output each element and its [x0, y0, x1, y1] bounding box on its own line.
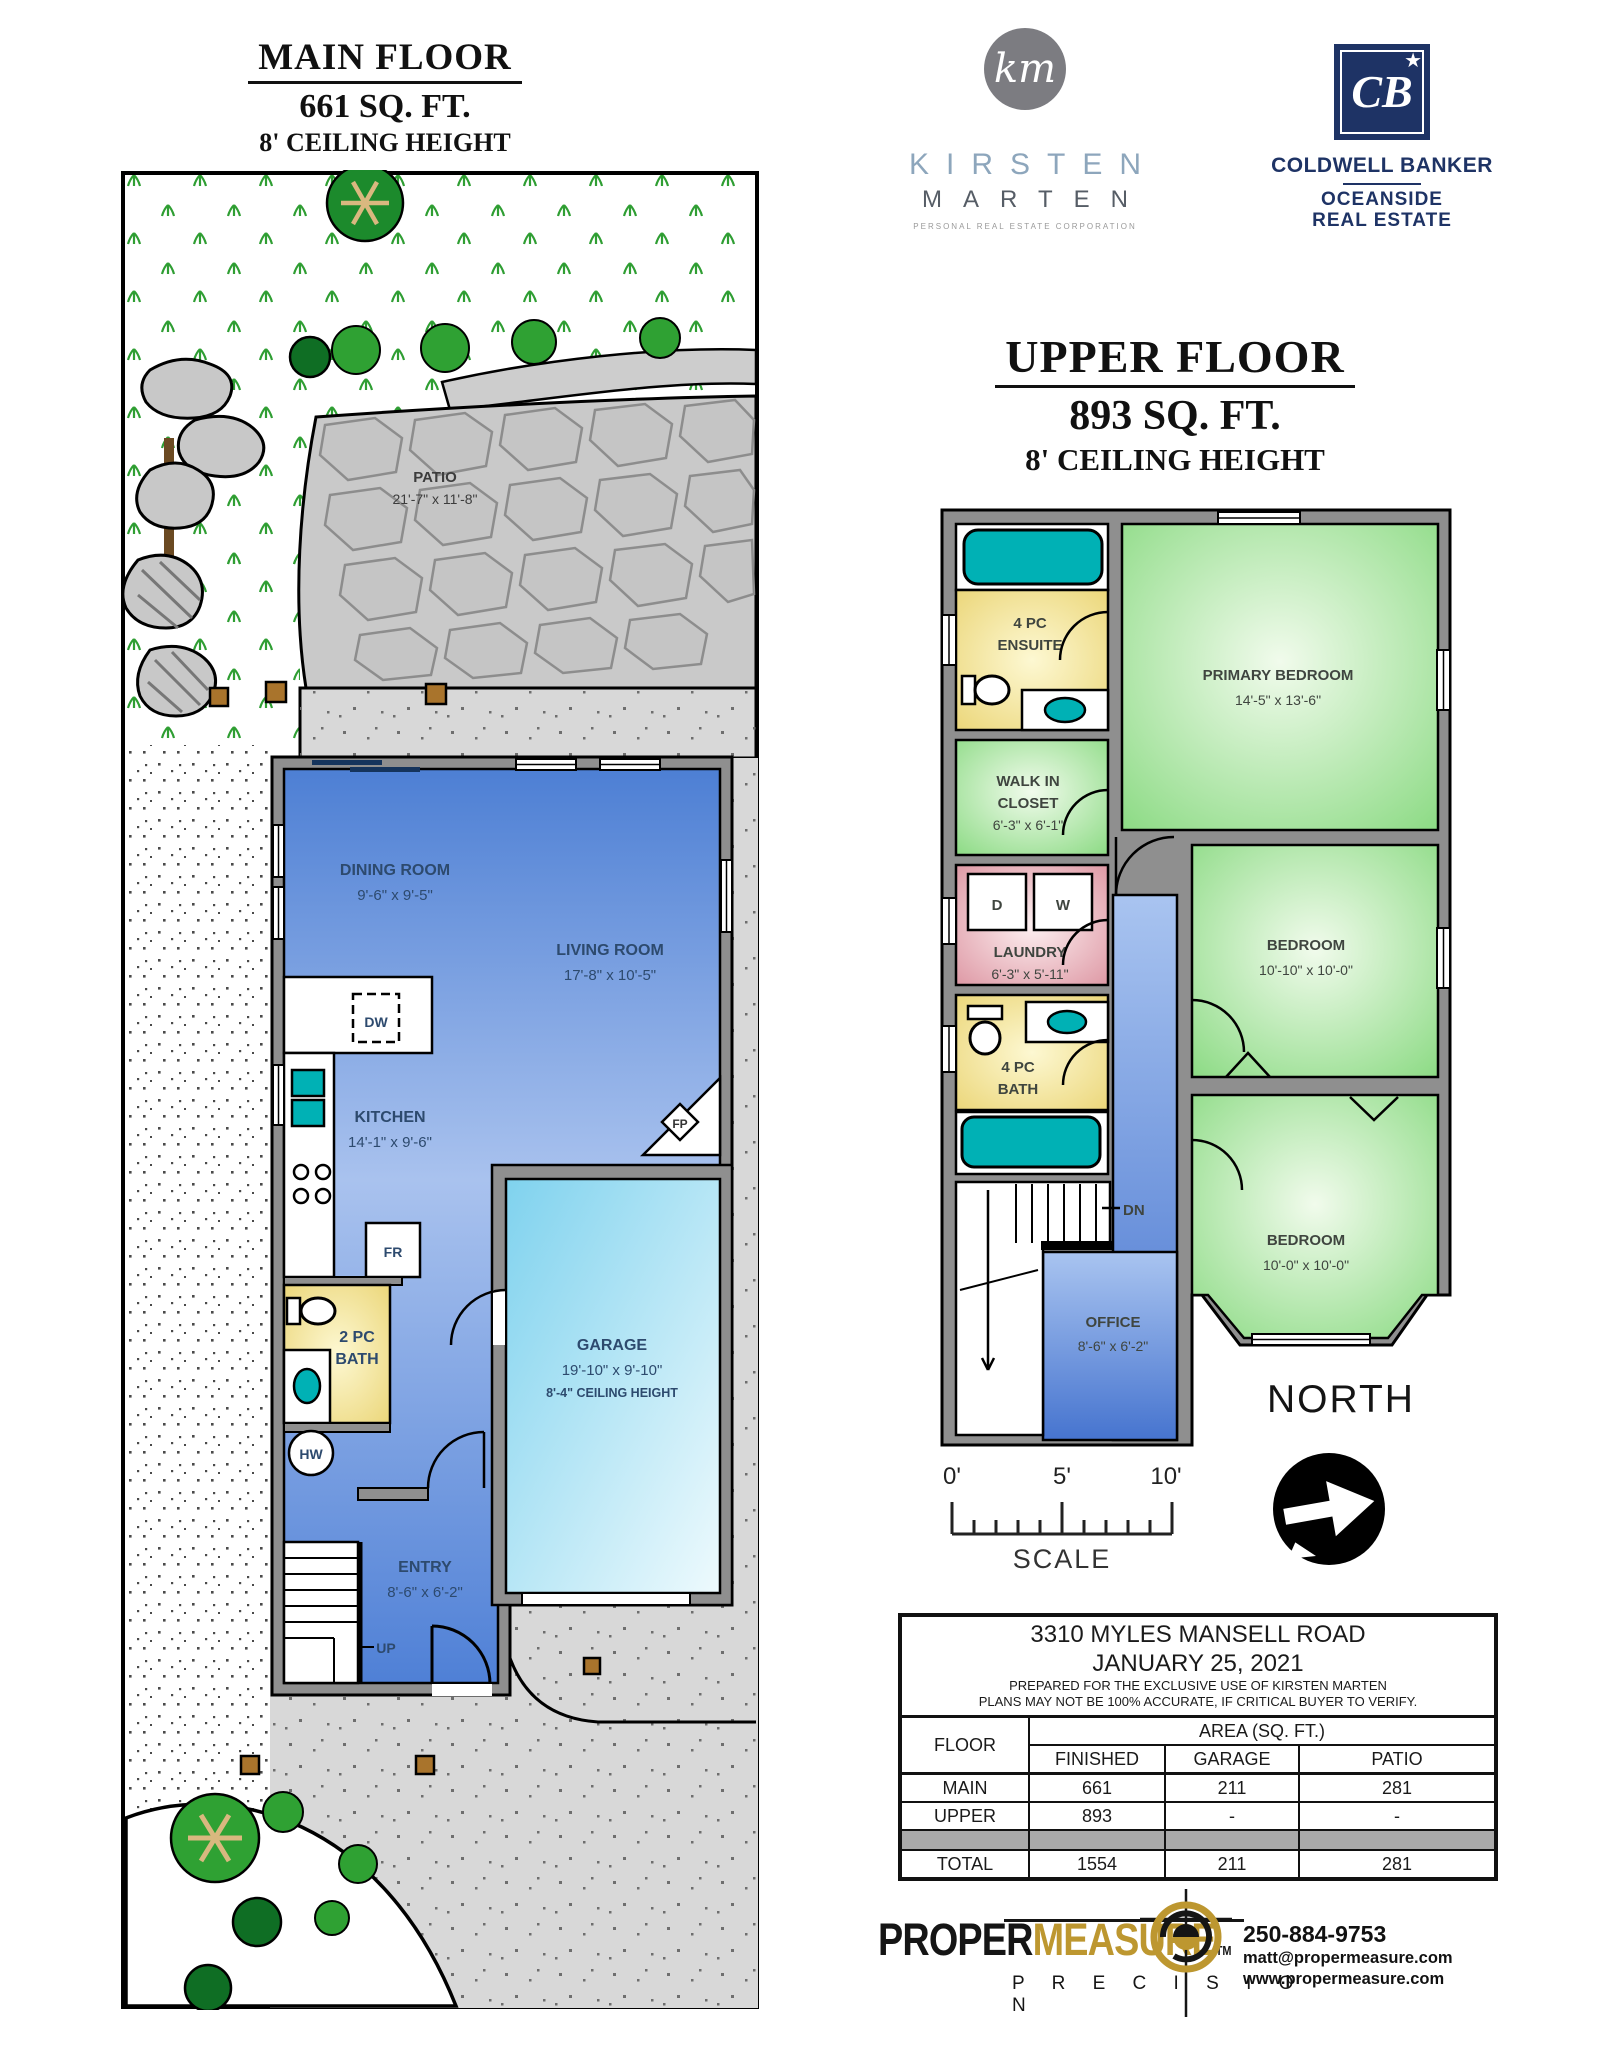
- entry-dims: 8'-6" x 6'-2": [387, 1584, 463, 1601]
- main-bath: 4 PC BATH: [956, 995, 1108, 1110]
- patio: PATIO 21'-7" x 11'-8": [299, 396, 756, 688]
- scale-bar: 0' 5' 10' SCALE: [938, 1452, 1188, 1577]
- fp-label: FP: [672, 1117, 687, 1131]
- kirsten-marten-logo: km KIRSTEN MARTEN PERSONAL REAL ESTATE C…: [860, 28, 1190, 231]
- upper-floor-title-block: UPPER FLOOR 893 SQ. FT. 8' CEILING HEIGH…: [955, 330, 1395, 478]
- cb-name: COLDWELL BANKER: [1253, 154, 1511, 178]
- laundry-label: LAUNDRY: [994, 944, 1067, 961]
- laundry: D W LAUNDRY 6'-3" x 5'-11": [956, 865, 1108, 985]
- deck: [300, 688, 756, 758]
- phone-number: 250-884-9753: [1243, 1920, 1523, 1948]
- living-dims: 17'-8" x 10'-5": [564, 967, 656, 984]
- main-house: GARAGE 19'-10" x 9'-10" 8'-4" CEILING HE…: [272, 757, 732, 1696]
- scale-ruler: [952, 1502, 1172, 1534]
- closet-label2: CLOSET: [998, 795, 1059, 812]
- bedroom3-label: BEDROOM: [1267, 1232, 1345, 1249]
- row-total-garage: 211: [1166, 1851, 1300, 1877]
- col-patio: PATIO: [1300, 1746, 1494, 1775]
- garage-dims: 19'-10" x 9'-10": [562, 1362, 663, 1379]
- cb-monogram: CB: [1351, 69, 1412, 115]
- row-main-patio: 281: [1300, 1775, 1494, 1803]
- sink-icon: [1048, 1011, 1086, 1033]
- dining-dims: 9'-6" x 9'-5": [357, 887, 433, 904]
- cb-logo-icon: CB ★: [1334, 44, 1430, 140]
- upper-floor-plan: 4 PC ENSUITE WALK IN CLOSET 6'-3" x 6'-1…: [930, 500, 1460, 1460]
- col-floor: FLOOR: [902, 1718, 1030, 1775]
- kitchen-label: KITCHEN: [354, 1109, 425, 1126]
- prepared-for: PREPARED FOR THE EXCLUSIVE USE OF KIRSTE…: [902, 1678, 1494, 1694]
- bedroom-2: BEDROOM 10'-10" x 10'-0": [1192, 845, 1438, 1077]
- km-monogram-icon: km: [984, 28, 1066, 110]
- website: www.propermeasure.com: [1243, 1969, 1523, 1990]
- row-main-floor: MAIN: [902, 1775, 1030, 1803]
- powder-room: 2 PC BATH: [284, 1277, 402, 1432]
- bedroom2-label: BEDROOM: [1267, 937, 1345, 954]
- row-upper-finished: 893: [1030, 1803, 1166, 1831]
- washer-label: W: [1056, 897, 1071, 914]
- primary-dims: 14'-5" x 13'-6": [1235, 692, 1321, 708]
- col-garage: GARAGE: [1166, 1746, 1300, 1775]
- dining-label: DINING ROOM: [340, 862, 450, 879]
- plan-date: JANUARY 25, 2021: [902, 1649, 1494, 1678]
- dw-label: DW: [364, 1014, 388, 1030]
- fr-label: FR: [384, 1244, 403, 1260]
- scale-label: SCALE: [1013, 1544, 1112, 1574]
- patio-label: PATIO: [413, 469, 457, 486]
- toilet-icon: [962, 676, 1009, 704]
- km-tagline: PERSONAL REAL ESTATE CORPORATION: [860, 222, 1190, 231]
- ensuite-label1: 4 PC: [1013, 615, 1047, 632]
- row-upper-floor: UPPER: [902, 1803, 1030, 1831]
- hot-water-tank: HW: [289, 1431, 333, 1475]
- bath2-label2: BATH: [335, 1351, 378, 1368]
- ensuite-tub: [956, 524, 1108, 590]
- kitchen-dims: 14'-1" x 9'-6": [348, 1134, 432, 1151]
- target-icon: [1140, 1889, 1232, 2017]
- row-total-finished: 1554: [1030, 1851, 1166, 1877]
- table-header: 3310 MYLES MANSELL ROAD JANUARY 25, 2021…: [902, 1617, 1494, 1718]
- primary-bedroom: PRIMARY BEDROOM 14'-5" x 13'-6": [1122, 524, 1438, 830]
- scale-5: 5': [1053, 1463, 1071, 1490]
- upper-floor-area: 893 SQ. FT.: [955, 392, 1395, 440]
- row-main-garage: 211: [1166, 1775, 1300, 1803]
- hw-label: HW: [299, 1446, 323, 1462]
- col-area: AREA (SQ. FT.): [1030, 1718, 1494, 1746]
- row-main-finished: 661: [1030, 1775, 1166, 1803]
- main-floor-title: MAIN FLOOR: [248, 36, 522, 84]
- upper-floor-ceiling: 8' CEILING HEIGHT: [955, 442, 1395, 478]
- main-floor-title-block: MAIN FLOOR 661 SQ. FT. 8' CEILING HEIGHT: [150, 36, 620, 158]
- office-label: OFFICE: [1086, 1314, 1141, 1331]
- row-upper-garage: -: [1166, 1803, 1300, 1831]
- toilet-icon: [968, 1006, 1002, 1054]
- entry-label: ENTRY: [398, 1559, 452, 1576]
- bath-tub: [956, 1112, 1108, 1174]
- scale-0: 0': [943, 1463, 961, 1490]
- main-floor-ceiling: 8' CEILING HEIGHT: [150, 128, 620, 158]
- spacer-row: [902, 1831, 1030, 1851]
- area-grid: FLOOR AREA (SQ. FT.) FINISHED GARAGE PAT…: [902, 1718, 1494, 1877]
- toilet-icon: [287, 1298, 335, 1324]
- upper-floor-title: UPPER FLOOR: [995, 330, 1354, 388]
- coldwell-banker-logo: CB ★ COLDWELL BANKER OCEANSIDE REAL ESTA…: [1253, 44, 1511, 231]
- km-first-name: KIRSTEN: [860, 148, 1190, 182]
- km-last-name: MARTEN: [860, 186, 1190, 214]
- laundry-dims: 6'-3" x 5'-11": [991, 966, 1068, 982]
- bedroom-3: BEDROOM 10'-0" x 10'-0": [1192, 1095, 1438, 1345]
- garage: GARAGE 19'-10" x 9'-10" 8'-4" CEILING HE…: [492, 1165, 732, 1605]
- email: matt@propermeasure.com: [1243, 1948, 1523, 1969]
- dn-label: DN: [1123, 1202, 1145, 1219]
- cb-star-icon: ★: [1404, 48, 1422, 73]
- bath-label1: 4 PC: [1001, 1059, 1035, 1076]
- bedroom2-dims: 10'-10" x 10'-0": [1259, 962, 1353, 978]
- sink-icon: [294, 1369, 320, 1403]
- main-floor-area: 661 SQ. FT.: [150, 88, 620, 126]
- garage-ceiling: 8'-4" CEILING HEIGHT: [546, 1386, 678, 1400]
- floor-plan-page: MAIN FLOOR 661 SQ. FT. 8' CEILING HEIGHT…: [0, 0, 1600, 2071]
- disclaimer: PLANS MAY NOT BE 100% ACCURATE, IF CRITI…: [902, 1694, 1494, 1710]
- north-label: NORTH: [1235, 1378, 1447, 1422]
- garage-label: GARAGE: [577, 1337, 648, 1354]
- area-summary-table: 3310 MYLES MANSELL ROAD JANUARY 25, 2021…: [898, 1613, 1498, 1881]
- dryer-label: D: [992, 897, 1003, 914]
- contact-block: 250-884-9753 matt@propermeasure.com www.…: [1243, 1920, 1523, 1990]
- row-upper-patio: -: [1300, 1803, 1494, 1831]
- ensuite: 4 PC ENSUITE: [956, 590, 1108, 730]
- walkin-closet: WALK IN CLOSET 6'-3" x 6'-1": [956, 740, 1108, 855]
- closet-dims: 6'-3" x 6'-1": [993, 817, 1064, 833]
- scale-10: 10': [1150, 1463, 1181, 1490]
- north-arrow-icon: [1268, 1448, 1390, 1570]
- bath2-label1: 2 PC: [339, 1329, 375, 1346]
- row-total-label: TOTAL: [902, 1851, 1030, 1877]
- cb-office-line2: REAL ESTATE: [1253, 210, 1511, 231]
- bedroom3-dims: 10'-0" x 10'-0": [1263, 1257, 1349, 1273]
- sink-icon: [1045, 698, 1085, 722]
- main-floor-plan: PATIO 21'-7" x 11'-8": [120, 170, 760, 2010]
- row-total-patio: 281: [1300, 1851, 1494, 1877]
- property-address: 3310 MYLES MANSELL ROAD: [902, 1620, 1494, 1649]
- cb-divider: [1343, 183, 1421, 185]
- office-dims: 8'-6" x 6'-2": [1078, 1338, 1149, 1354]
- cb-office-line1: OCEANSIDE: [1253, 189, 1511, 210]
- patio-dims: 21'-7" x 11'-8": [392, 491, 477, 507]
- up-label: UP: [376, 1640, 395, 1656]
- office: OFFICE 8'-6" x 6'-2": [1043, 1252, 1177, 1440]
- primary-label: PRIMARY BEDROOM: [1203, 667, 1354, 684]
- bath-label2: BATH: [998, 1081, 1039, 1098]
- brand-proper: PROPER: [878, 1914, 1033, 1965]
- ensuite-label2: ENSUITE: [997, 637, 1062, 654]
- km-monogram: km: [994, 46, 1056, 92]
- living-label: LIVING ROOM: [556, 942, 664, 959]
- col-finished: FINISHED: [1030, 1746, 1166, 1775]
- closet-label1: WALK IN: [996, 773, 1059, 790]
